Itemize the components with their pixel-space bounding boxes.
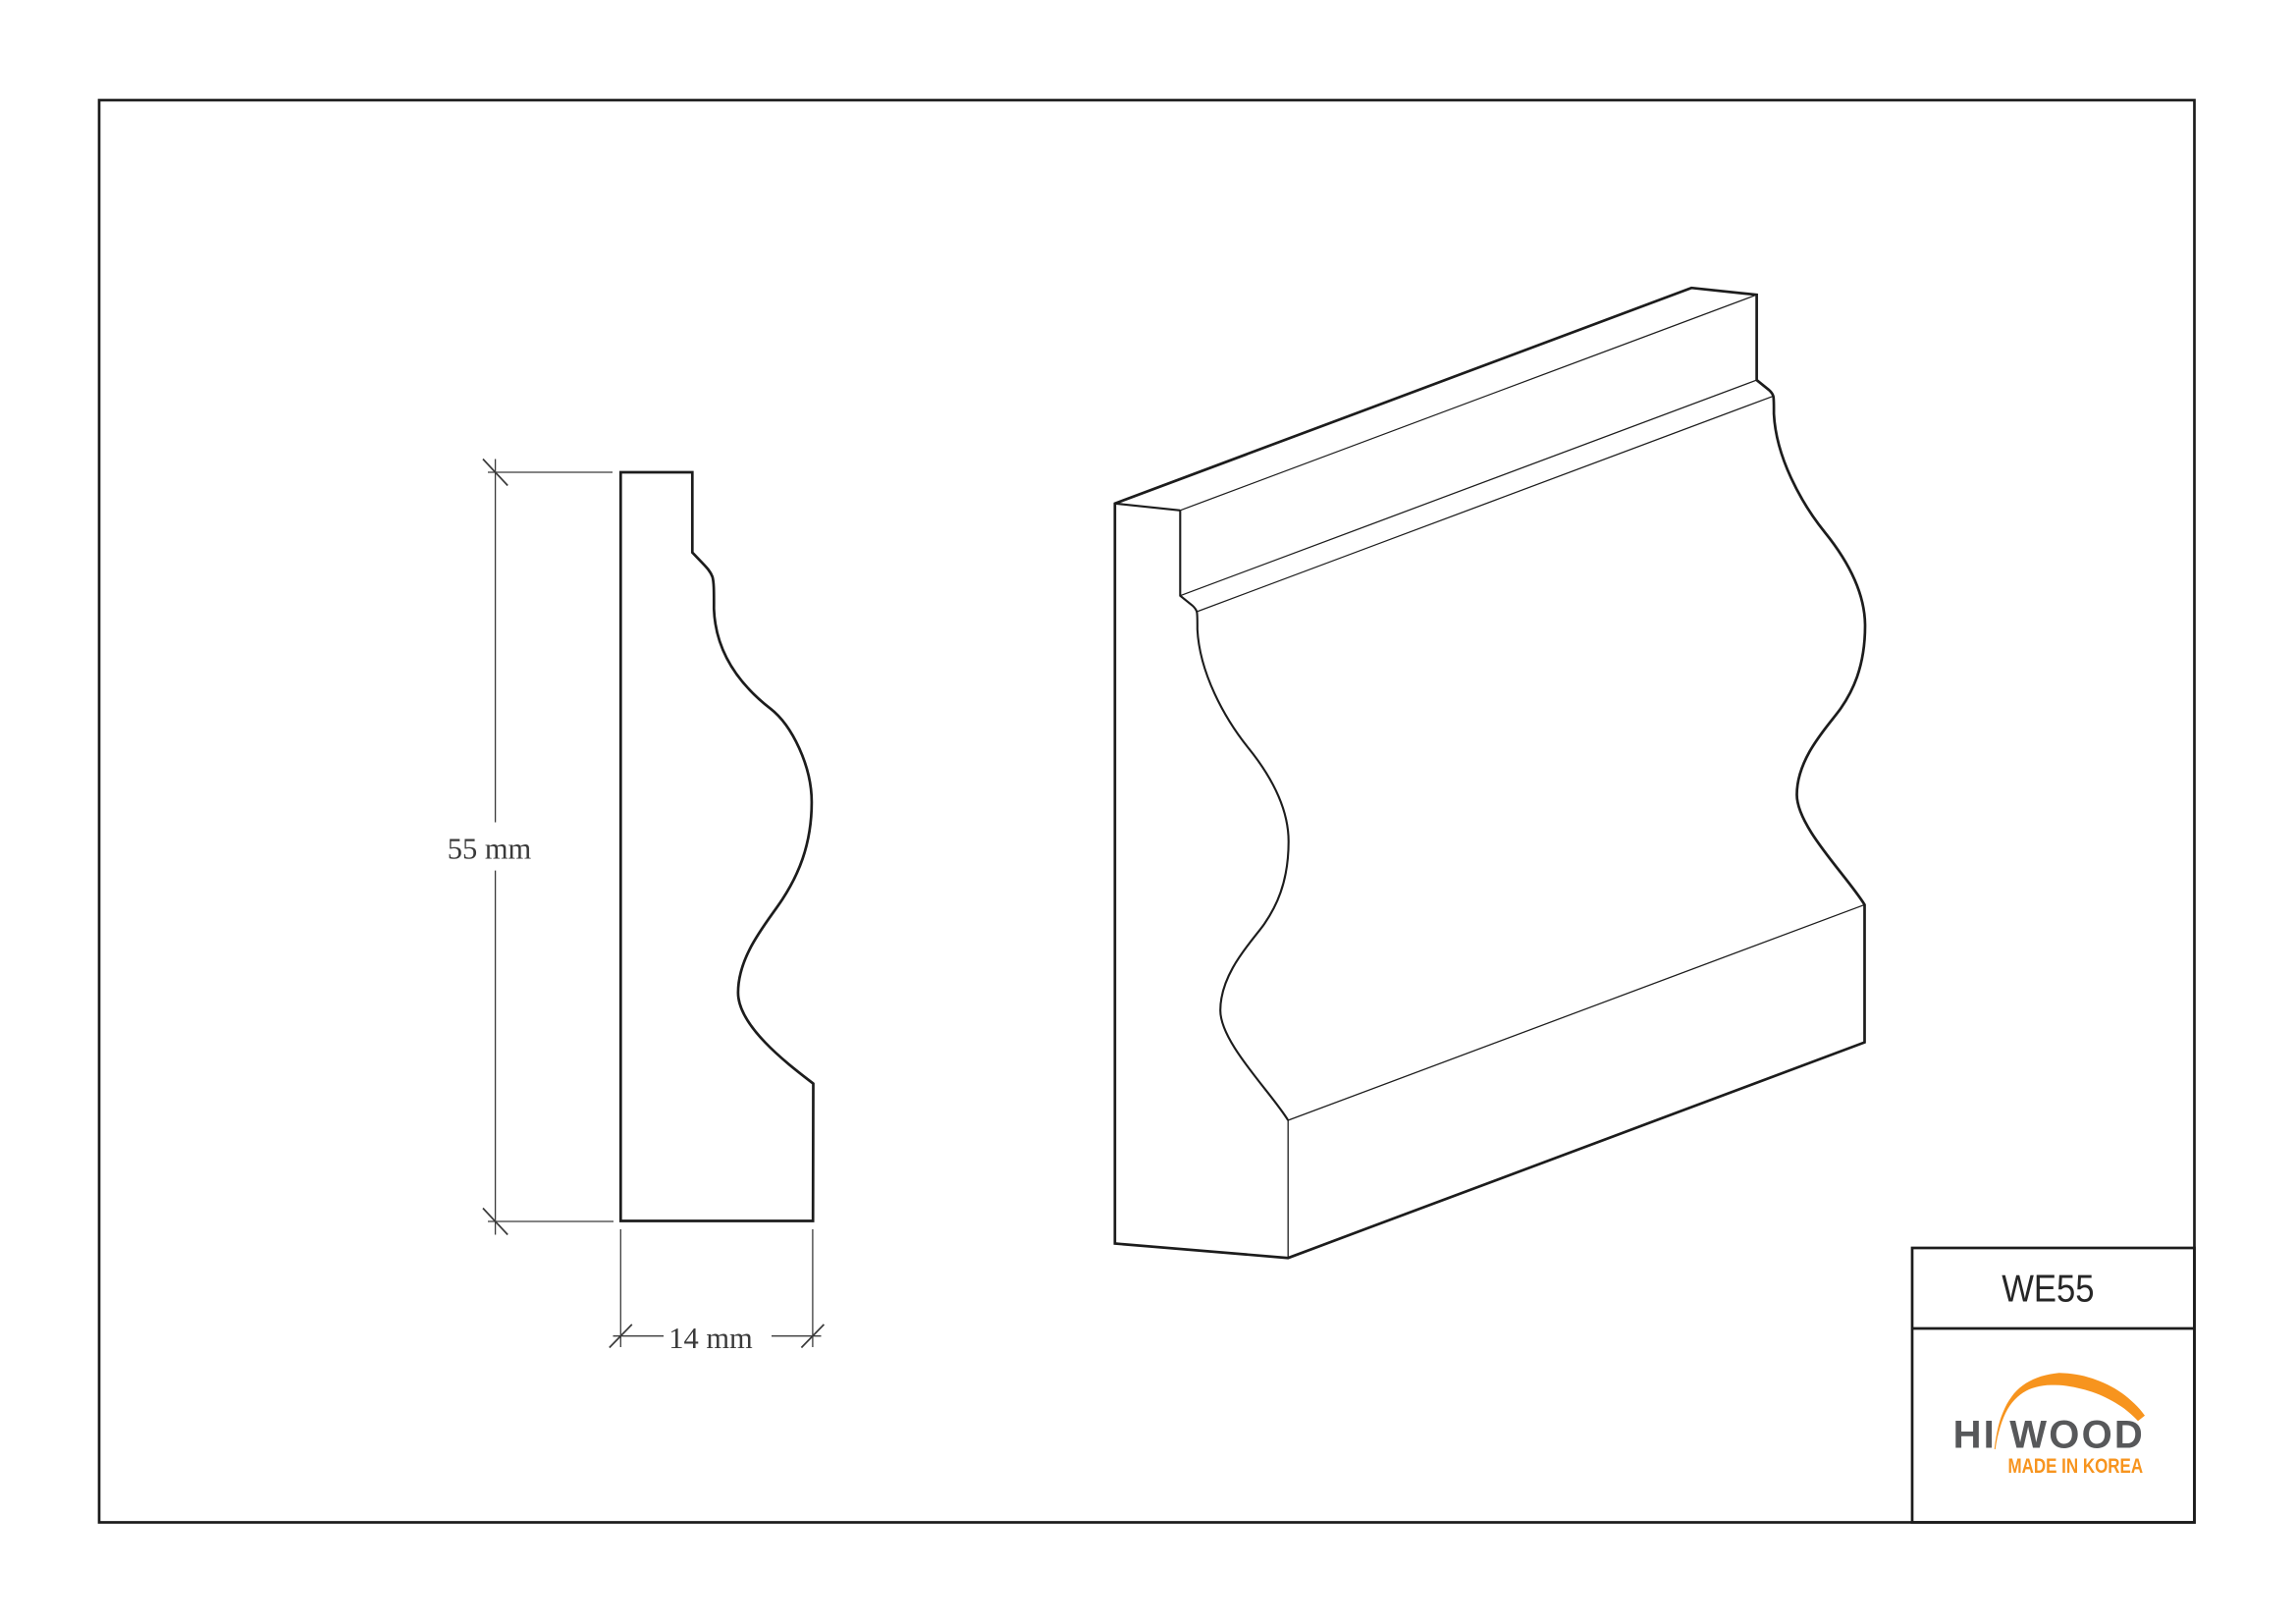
svg-text:14 mm: 14 mm bbox=[668, 1322, 753, 1355]
svg-text:MADE IN KOREA: MADE IN KOREA bbox=[2007, 1454, 2143, 1478]
svg-text:55 mm: 55 mm bbox=[448, 833, 532, 866]
svg-text:HI WOOD: HI WOOD bbox=[1953, 1414, 2145, 1457]
svg-text:WE55: WE55 bbox=[2002, 1268, 2094, 1310]
